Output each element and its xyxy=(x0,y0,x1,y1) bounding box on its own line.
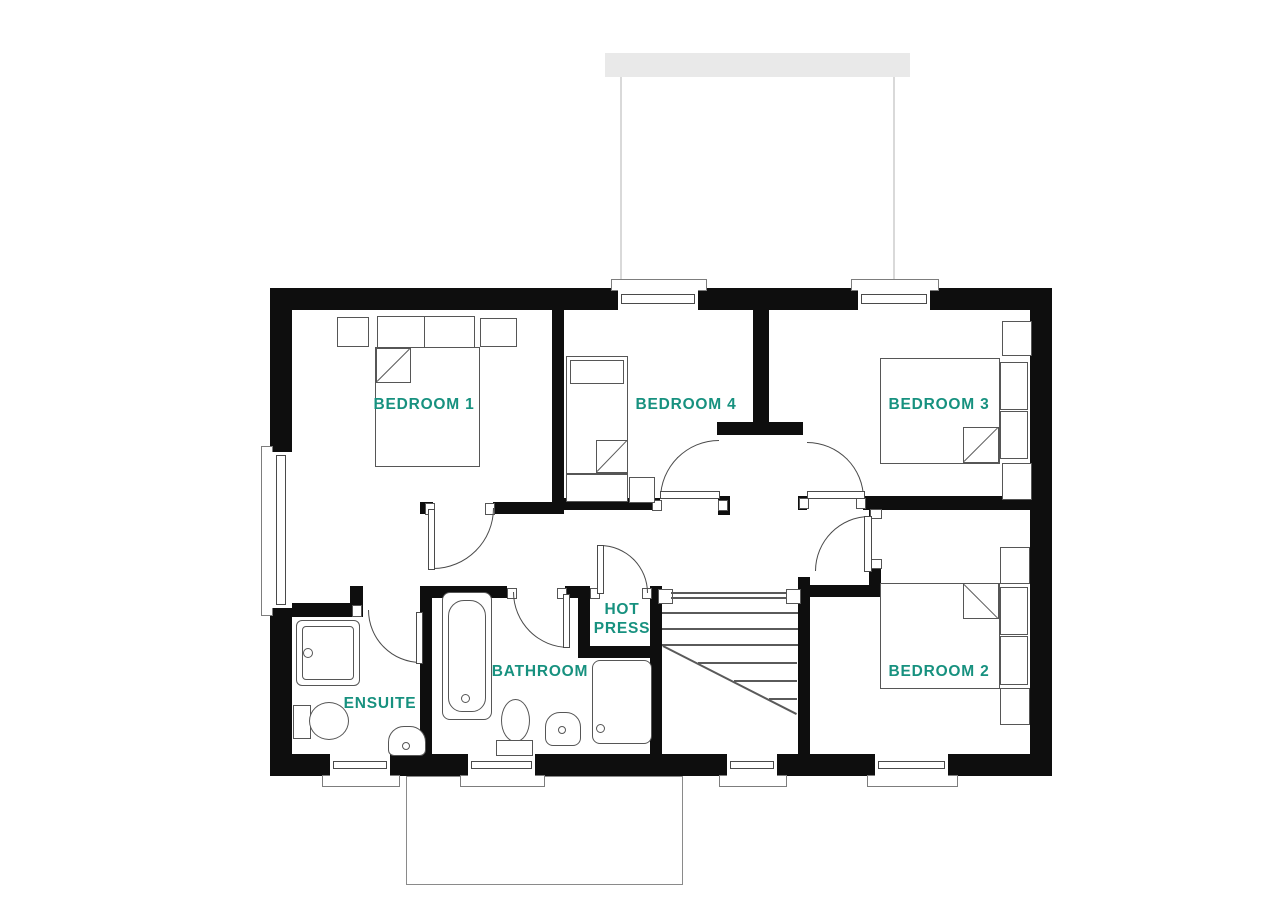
ensuite-sink-drain xyxy=(402,742,410,750)
window-top-2 xyxy=(858,287,930,311)
window-bottom-2 xyxy=(468,754,535,776)
window-left xyxy=(270,452,292,608)
jamb-bedroom4-right xyxy=(718,500,728,511)
bedroom3-bedside-table xyxy=(1002,321,1032,356)
door-arc-ensuite xyxy=(368,610,421,663)
wall-bedroom1-bedroom4 xyxy=(552,310,564,514)
bedroom3-bedside-table xyxy=(1002,463,1032,500)
door-arc-hot-press xyxy=(600,545,648,593)
room-label-bedroom-2: BEDROOM 2 xyxy=(888,662,989,681)
jamb-bedroom3-right xyxy=(856,498,866,509)
stair-winder xyxy=(734,680,797,682)
bedroom1-wardrobe xyxy=(337,317,369,347)
door-arc-bathroom xyxy=(513,592,569,648)
door-leaf-bedroom-3 xyxy=(807,491,865,499)
canopy-drop-line-left xyxy=(620,77,622,288)
window-top-1 xyxy=(618,287,698,311)
canopy-bar xyxy=(605,53,910,77)
ensuite-shower-drain xyxy=(303,648,313,658)
stair-tread xyxy=(662,628,798,630)
bathroom-toilet-cistern xyxy=(496,740,533,756)
stair-tread xyxy=(662,644,798,646)
bedroom2-bedside-table xyxy=(1000,688,1030,725)
porch-outline xyxy=(406,776,683,885)
room-label-ensuite: ENSUITE xyxy=(344,694,417,713)
room-label-bedroom-3: BEDROOM 3 xyxy=(888,395,989,414)
jamb-ensuite xyxy=(352,605,362,617)
bathroom-toilet-bowl xyxy=(501,699,530,742)
bedroom4-pillow xyxy=(570,360,624,384)
window-frame xyxy=(878,761,945,769)
window-sill-bottom-2 xyxy=(460,775,545,787)
room-label-bathroom: BATHROOM xyxy=(492,662,589,681)
wall-landing-north xyxy=(717,422,803,435)
bathroom-bath-drain xyxy=(461,694,470,703)
door-arc-bedroom-2 xyxy=(815,516,870,571)
bedroom2-pillow xyxy=(1000,587,1028,635)
bedroom1-wardrobe xyxy=(480,318,517,347)
room-label-bedroom-4: BEDROOM 4 xyxy=(635,395,736,414)
door-leaf-bathroom xyxy=(563,594,570,648)
bedroom1-wardrobe xyxy=(377,316,426,349)
bedroom3-pillow xyxy=(1000,362,1028,410)
bathroom-shower-drain xyxy=(596,724,605,733)
window-sill-bottom-1 xyxy=(322,775,400,787)
bedroom4-bed-foot-box xyxy=(566,474,628,502)
stair-winder xyxy=(769,698,797,700)
bedroom3-pillow xyxy=(1000,411,1028,459)
canopy-drop-line-right xyxy=(893,77,895,288)
door-leaf-hot-press xyxy=(597,545,604,594)
room-label-hot-press: HOT PRESS xyxy=(594,600,651,639)
bedroom2-bedside-table xyxy=(1000,547,1030,584)
wall-hotpress-south xyxy=(578,646,662,658)
window-frame xyxy=(276,455,286,605)
stair-tread xyxy=(662,612,798,614)
window-frame xyxy=(621,294,695,304)
stair-top-edge xyxy=(671,592,786,594)
room-label-bedroom-1: BEDROOM 1 xyxy=(373,395,474,414)
exterior-wall-right xyxy=(1030,288,1052,776)
door-leaf-bedroom-4 xyxy=(660,491,720,499)
window-frame xyxy=(471,761,532,769)
wall-bedroom4-bedroom3 xyxy=(753,310,769,422)
door-arc-bedroom-1 xyxy=(433,508,494,569)
jamb-bedroom3-left xyxy=(799,498,809,509)
bedroom4-bedside-table xyxy=(629,477,655,503)
stair-top-edge-2 xyxy=(671,597,786,599)
ensuite-sink xyxy=(388,726,426,756)
window-sill-bottom-4 xyxy=(867,775,958,787)
window-sill-bottom-3 xyxy=(719,775,787,787)
door-leaf-bedroom-2 xyxy=(864,516,872,572)
window-bottom-4 xyxy=(875,754,948,776)
door-leaf-bedroom-1 xyxy=(428,509,435,570)
window-bottom-3 xyxy=(727,754,777,776)
hot-press-line-1: HOT xyxy=(604,601,639,618)
bathroom-sink-drain xyxy=(558,726,566,734)
hot-press-line-2: PRESS xyxy=(594,620,651,637)
wall-bedroom1-south xyxy=(493,502,564,514)
wall-vestibule-south xyxy=(810,585,881,597)
window-frame xyxy=(861,294,927,304)
floor-plan: BEDROOM 1 BEDROOM 4 BEDROOM 3 BEDROOM 2 … xyxy=(0,0,1280,906)
window-frame xyxy=(730,761,774,769)
window-frame xyxy=(333,761,387,769)
stair-winder xyxy=(698,662,797,664)
bedroom2-pillow xyxy=(1000,636,1028,685)
stair-newel-right xyxy=(786,589,801,604)
door-leaf-ensuite xyxy=(416,612,423,664)
window-bottom-1 xyxy=(330,754,390,776)
bedroom1-wardrobe xyxy=(424,316,475,349)
